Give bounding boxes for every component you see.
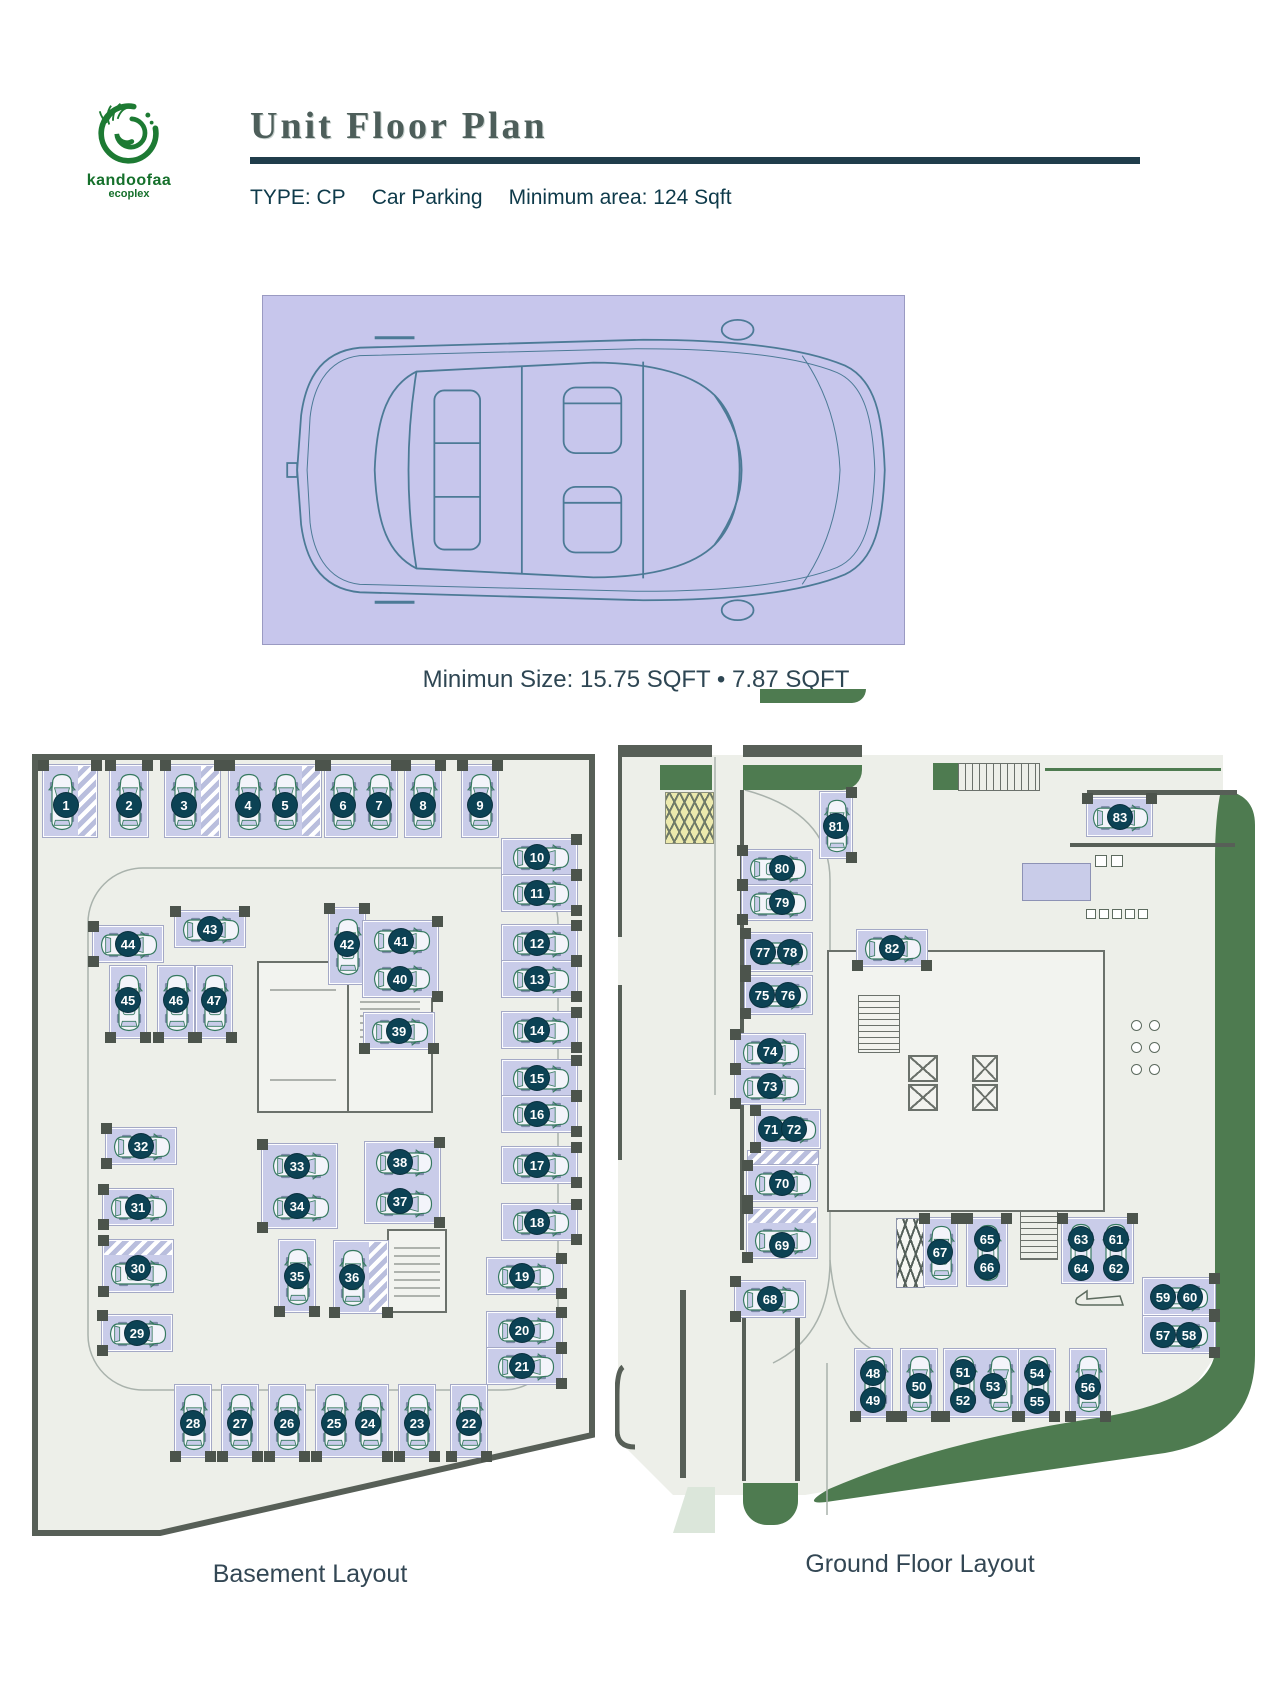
stall-number-badge: 48 [861, 1361, 885, 1385]
landscape-strip-upper [760, 689, 866, 703]
column-pillar [896, 1411, 907, 1422]
column-pillar [97, 1310, 108, 1321]
stall-number-badge: 18 [525, 1210, 549, 1234]
column-pillar [101, 1158, 112, 1169]
chair-glyph [1131, 1020, 1142, 1031]
wall [618, 745, 712, 757]
stall-number-badge: 35 [285, 1264, 309, 1288]
chair-glyph [1149, 1020, 1160, 1031]
column-pillar [324, 903, 335, 914]
stall-number-badge: 43 [198, 917, 222, 941]
column-pillar [446, 1451, 457, 1462]
brand-logo: kandoofaa ecoplex [84, 100, 174, 230]
column-pillar [257, 1139, 268, 1150]
column-pillar [239, 906, 250, 917]
column-pillar [226, 1032, 237, 1043]
column-pillar [299, 1451, 310, 1462]
landscape-strip-a [660, 765, 712, 790]
ground-floor-label: Ground Floor Layout [745, 1550, 1095, 1579]
min-area: Minimum area: 124 Sqft [509, 186, 732, 209]
table-glyph [1086, 909, 1096, 919]
hatched-strip [201, 766, 219, 836]
chair-glyph [1149, 1042, 1160, 1053]
stall-number-badge: 14 [525, 1018, 549, 1042]
column-pillar [1209, 1347, 1220, 1358]
basement-plan: Basement Layout 123456789101112131415161… [30, 700, 595, 1600]
column-pillar [153, 1032, 164, 1043]
wall [742, 1293, 746, 1481]
column-pillar [556, 1307, 567, 1318]
stall-number-badge: 64 [1069, 1256, 1093, 1280]
stall-number-badge: 25 [322, 1411, 346, 1435]
column-pillar [311, 1451, 322, 1462]
stall-number-badge: 28 [181, 1411, 205, 1435]
stall-number-badge: 60 [1178, 1285, 1202, 1309]
column-pillar [846, 852, 857, 863]
lobby-outline [827, 950, 1105, 1212]
column-pillar [492, 760, 503, 771]
stall-number-badge: 59 [1151, 1285, 1175, 1309]
column-pillar [571, 1007, 582, 1018]
stall-number-badge: 23 [405, 1411, 429, 1435]
stall-number-badge: 46 [164, 988, 188, 1012]
column-pillar [428, 1043, 439, 1054]
column-pillar [1001, 1213, 1012, 1224]
column-pillar [170, 1451, 181, 1462]
stall-number-badge: 63 [1069, 1227, 1093, 1251]
column-pillar [224, 760, 235, 771]
brand-subname: ecoplex [84, 188, 174, 200]
column-pillar [962, 1213, 973, 1224]
elevator [908, 1084, 938, 1111]
stall-number-badge: 67 [928, 1240, 952, 1264]
column-pillar [320, 760, 331, 771]
column-pillar [170, 906, 181, 917]
elevator [908, 1055, 938, 1082]
column-pillar [394, 1451, 405, 1462]
column-pillar [101, 1123, 112, 1134]
stall-number-badge: 37 [388, 1189, 412, 1213]
column-pillar [191, 1032, 202, 1043]
column-pillar [432, 916, 443, 927]
table-glyph [1099, 909, 1109, 919]
stall-number-badge: 22 [457, 1411, 481, 1435]
stall-number-badge: 83 [1108, 805, 1132, 829]
column-pillar [850, 1411, 861, 1422]
car-top-view-drawing [263, 296, 904, 644]
stall-number-badge: 33 [285, 1154, 309, 1178]
column-pillar [742, 1252, 753, 1263]
wall [1070, 843, 1235, 847]
stall-number-badge: 1 [54, 793, 78, 817]
column-pillar [556, 1288, 567, 1299]
column-pillar [571, 905, 582, 916]
column-pillar [740, 971, 751, 982]
column-pillar [571, 834, 582, 845]
stall-number-badge: 82 [880, 936, 904, 960]
column-pillar [429, 1451, 440, 1462]
wall [795, 1293, 800, 1481]
column-pillar [737, 845, 748, 856]
column-pillar [160, 760, 171, 771]
column-pillar [730, 1064, 741, 1075]
stall-number-badge: 54 [1025, 1361, 1049, 1385]
elevator [972, 1055, 998, 1082]
column-pillar [742, 1203, 753, 1214]
chair-glyph [1131, 1064, 1142, 1075]
column-pillar [435, 760, 446, 771]
column-pillar [571, 870, 582, 881]
stall-number-badge: 8 [411, 793, 435, 817]
stall-number-badge: 10 [525, 845, 549, 869]
table-glyph [1111, 855, 1123, 867]
column-pillar [400, 760, 411, 771]
column-pillar [105, 1032, 116, 1043]
hatched-strip [369, 1242, 387, 1312]
column-pillar [730, 1098, 741, 1109]
stall-number-badge: 19 [510, 1264, 534, 1288]
brand-name: kandoofaa [84, 173, 174, 188]
stall-number-badge: 50 [907, 1374, 931, 1398]
stall-number-badge: 29 [125, 1321, 149, 1345]
column-pillar [382, 1451, 393, 1462]
column-pillar [434, 1137, 445, 1148]
stall-number-badge: 6 [331, 793, 355, 817]
column-pillar [257, 1222, 268, 1233]
yellow-hatch-area [665, 792, 714, 844]
stall-number-badge: 39 [387, 1019, 411, 1043]
hatched-strip [78, 766, 96, 836]
stall-number-badge: 68 [758, 1287, 782, 1311]
table-glyph [1095, 855, 1107, 867]
chair-glyph [1149, 1064, 1160, 1075]
column-pillar [91, 760, 102, 771]
column-pillar [88, 956, 99, 967]
column-pillar [939, 1411, 950, 1422]
column-pillar [1209, 1273, 1220, 1284]
hatched-strip [748, 1209, 816, 1223]
stall-number-badge: 79 [770, 890, 794, 914]
column-pillar [88, 921, 99, 932]
stall-number-badge: 65 [975, 1227, 999, 1251]
stall-number-badge: 32 [129, 1134, 153, 1158]
column-pillar [1014, 1411, 1025, 1422]
column-pillar [571, 1126, 582, 1137]
column-pillar [481, 1451, 492, 1462]
stall-number-badge: 9 [468, 793, 492, 817]
column-pillar [556, 1253, 567, 1264]
column-pillar [432, 991, 443, 1002]
stall-number-badge: 73 [758, 1074, 782, 1098]
column-pillar [97, 1345, 108, 1356]
reception-desk [1022, 863, 1091, 901]
stall-number-badge: 15 [525, 1066, 549, 1090]
stall-number-badge: 52 [951, 1388, 975, 1412]
column-pillar [38, 760, 49, 771]
column-pillar [742, 1160, 753, 1171]
stall-number-badge: 27 [228, 1411, 252, 1435]
elevator [972, 1084, 998, 1111]
stall-number-badge: 44 [116, 932, 140, 956]
stall-number-badge: 62 [1104, 1256, 1128, 1280]
stall-number-badge: 51 [951, 1360, 975, 1384]
stall-number-badge: 80 [770, 856, 794, 880]
column-pillar [1146, 793, 1157, 804]
column-pillar [1127, 1213, 1138, 1224]
stall-number-badge: 31 [126, 1195, 150, 1219]
stall-number-badge: 41 [389, 929, 413, 953]
lobby-stairs [858, 995, 900, 1053]
table-glyph [1112, 909, 1122, 919]
column-pillar [98, 1184, 109, 1195]
column-pillar [571, 1055, 582, 1066]
column-pillar [921, 960, 932, 971]
stall-number-badge: 47 [202, 988, 226, 1012]
page-title: Unit Floor Plan [250, 104, 548, 148]
stall-number-badge: 78 [778, 940, 802, 964]
column-pillar [457, 760, 468, 771]
column-pillar [434, 1217, 445, 1228]
column-pillar [217, 1451, 228, 1462]
column-pillar [142, 760, 153, 771]
stall-number-badge: 21 [510, 1354, 534, 1378]
stall-number-badge: 53 [981, 1374, 1005, 1398]
stall-number-badge: 38 [388, 1150, 412, 1174]
stall-number-badge: 2 [117, 793, 141, 817]
column-pillar [98, 1286, 109, 1297]
column-pillar [1049, 1411, 1060, 1422]
column-pillar [556, 1378, 567, 1389]
column-pillar [274, 1306, 285, 1317]
column-pillar [252, 1451, 263, 1462]
stall-number-badge: 70 [770, 1171, 794, 1195]
column-pillar [205, 1451, 216, 1462]
entry-stairs [958, 763, 1040, 791]
column-pillar [730, 1029, 741, 1040]
column-pillar [571, 1199, 582, 1210]
ground-floor-plan: Ground Floor Layout 81807977787576747371… [615, 695, 1280, 1555]
column-pillar [571, 956, 582, 967]
stall-number-badge: 56 [1076, 1375, 1100, 1399]
column-pillar [740, 1008, 751, 1019]
stall-number-badge: 12 [525, 931, 549, 955]
stall-number-badge: 3 [172, 793, 196, 817]
column-pillar [740, 928, 751, 939]
table-glyph [1125, 909, 1135, 919]
car-dimension-panel [262, 295, 905, 645]
stairs-right [1020, 1210, 1058, 1260]
hatched-strip [104, 1241, 172, 1255]
boundary-line [1045, 768, 1221, 771]
basement-label: Basement Layout [135, 1560, 485, 1589]
wall [743, 745, 862, 757]
stall-number-badge: 57 [1151, 1323, 1175, 1347]
column-pillar [359, 903, 370, 914]
column-pillar [571, 1042, 582, 1053]
column-pillar [1082, 793, 1093, 804]
hatch-strip-67 [896, 1218, 925, 1288]
column-pillar [846, 787, 857, 798]
stall-number-badge: 75 [750, 983, 774, 1007]
stall-number-badge: 42 [335, 932, 359, 956]
column-pillar [737, 914, 748, 925]
stall-number-badge: 4 [236, 793, 260, 817]
stall-number-badge: 81 [824, 814, 848, 838]
chair-glyph [1131, 1042, 1142, 1053]
column-pillar [359, 1043, 370, 1054]
stall-number-badge: 5 [273, 793, 297, 817]
stall-number-badge: 34 [285, 1194, 309, 1218]
wall [680, 1290, 686, 1478]
column-pillar [1065, 1411, 1076, 1422]
driveway-end-cap [743, 1483, 798, 1525]
column-pillar [571, 991, 582, 1002]
stall-number-badge: 13 [525, 967, 549, 991]
stall-number-badge: 40 [388, 967, 412, 991]
stall-number-badge: 77 [751, 940, 775, 964]
column-pillar [951, 1213, 962, 1224]
column-pillar [571, 1091, 582, 1102]
stall-number-badge: 74 [758, 1039, 782, 1063]
stall-number-badge: 49 [861, 1388, 885, 1412]
hatched-strip [302, 766, 320, 836]
title-rule [250, 157, 1140, 164]
stall-number-badge: 16 [525, 1102, 549, 1126]
column-pillar [919, 1213, 930, 1224]
column-pillar [730, 1311, 741, 1322]
column-pillar [105, 760, 116, 771]
stall-number-badge: 58 [1177, 1323, 1201, 1347]
column-pillar [571, 1177, 582, 1188]
column-pillar [852, 960, 863, 971]
column-pillar [1100, 1411, 1111, 1422]
column-pillar [737, 880, 748, 891]
stall-number-badge: 20 [510, 1318, 534, 1342]
landscape-strip-b [743, 765, 862, 790]
stall-number-badge: 61 [1104, 1227, 1128, 1251]
column-pillar [571, 1234, 582, 1245]
type-name: Car Parking [372, 186, 483, 209]
column-pillar [309, 1306, 320, 1317]
column-pillar [264, 1451, 275, 1462]
stall-number-badge: 24 [356, 1411, 380, 1435]
landscape-square [933, 763, 958, 790]
brochure-page: { "header": { "brand": "kandoofaa", "bra… [0, 0, 1280, 1707]
column-pillar [140, 1032, 151, 1043]
stall-number-badge: 66 [975, 1255, 999, 1279]
column-pillar [556, 1343, 567, 1354]
column-pillar [571, 1142, 582, 1153]
stall-number-badge: 36 [340, 1265, 364, 1289]
stall-number-badge: 69 [770, 1233, 794, 1257]
column-pillar [750, 1105, 761, 1116]
type-label: TYPE: CP [250, 186, 346, 209]
column-pillar [382, 1307, 393, 1318]
table-glyph [1138, 909, 1148, 919]
stall-number-badge: 45 [116, 988, 140, 1012]
stall-number-badge: 72 [782, 1117, 806, 1141]
unit-type-line: TYPE: CPCar ParkingMinimum area: 124 Sqf… [250, 186, 758, 210]
column-pillar [750, 1142, 761, 1153]
stall-number-badge: 30 [126, 1256, 150, 1280]
stall-number-badge: 76 [776, 983, 800, 1007]
stall-number-badge: 7 [367, 793, 391, 817]
column-pillar [98, 1219, 109, 1230]
column-pillar [98, 1235, 109, 1246]
stall-number-badge: 71 [759, 1117, 783, 1141]
column-pillar [1209, 1311, 1220, 1322]
column-pillar [730, 1276, 741, 1287]
wall [618, 985, 622, 1160]
column-pillar [329, 1307, 340, 1318]
stall-number-badge: 17 [525, 1153, 549, 1177]
stall-number-badge: 26 [275, 1411, 299, 1435]
wall [1087, 790, 1237, 795]
column-pillar [571, 920, 582, 931]
column-pillar [1057, 1213, 1068, 1224]
stall-number-badge: 11 [525, 881, 549, 905]
palm-swirl-icon [96, 100, 162, 166]
stall-number-badge: 55 [1025, 1389, 1049, 1413]
wall [618, 757, 622, 937]
